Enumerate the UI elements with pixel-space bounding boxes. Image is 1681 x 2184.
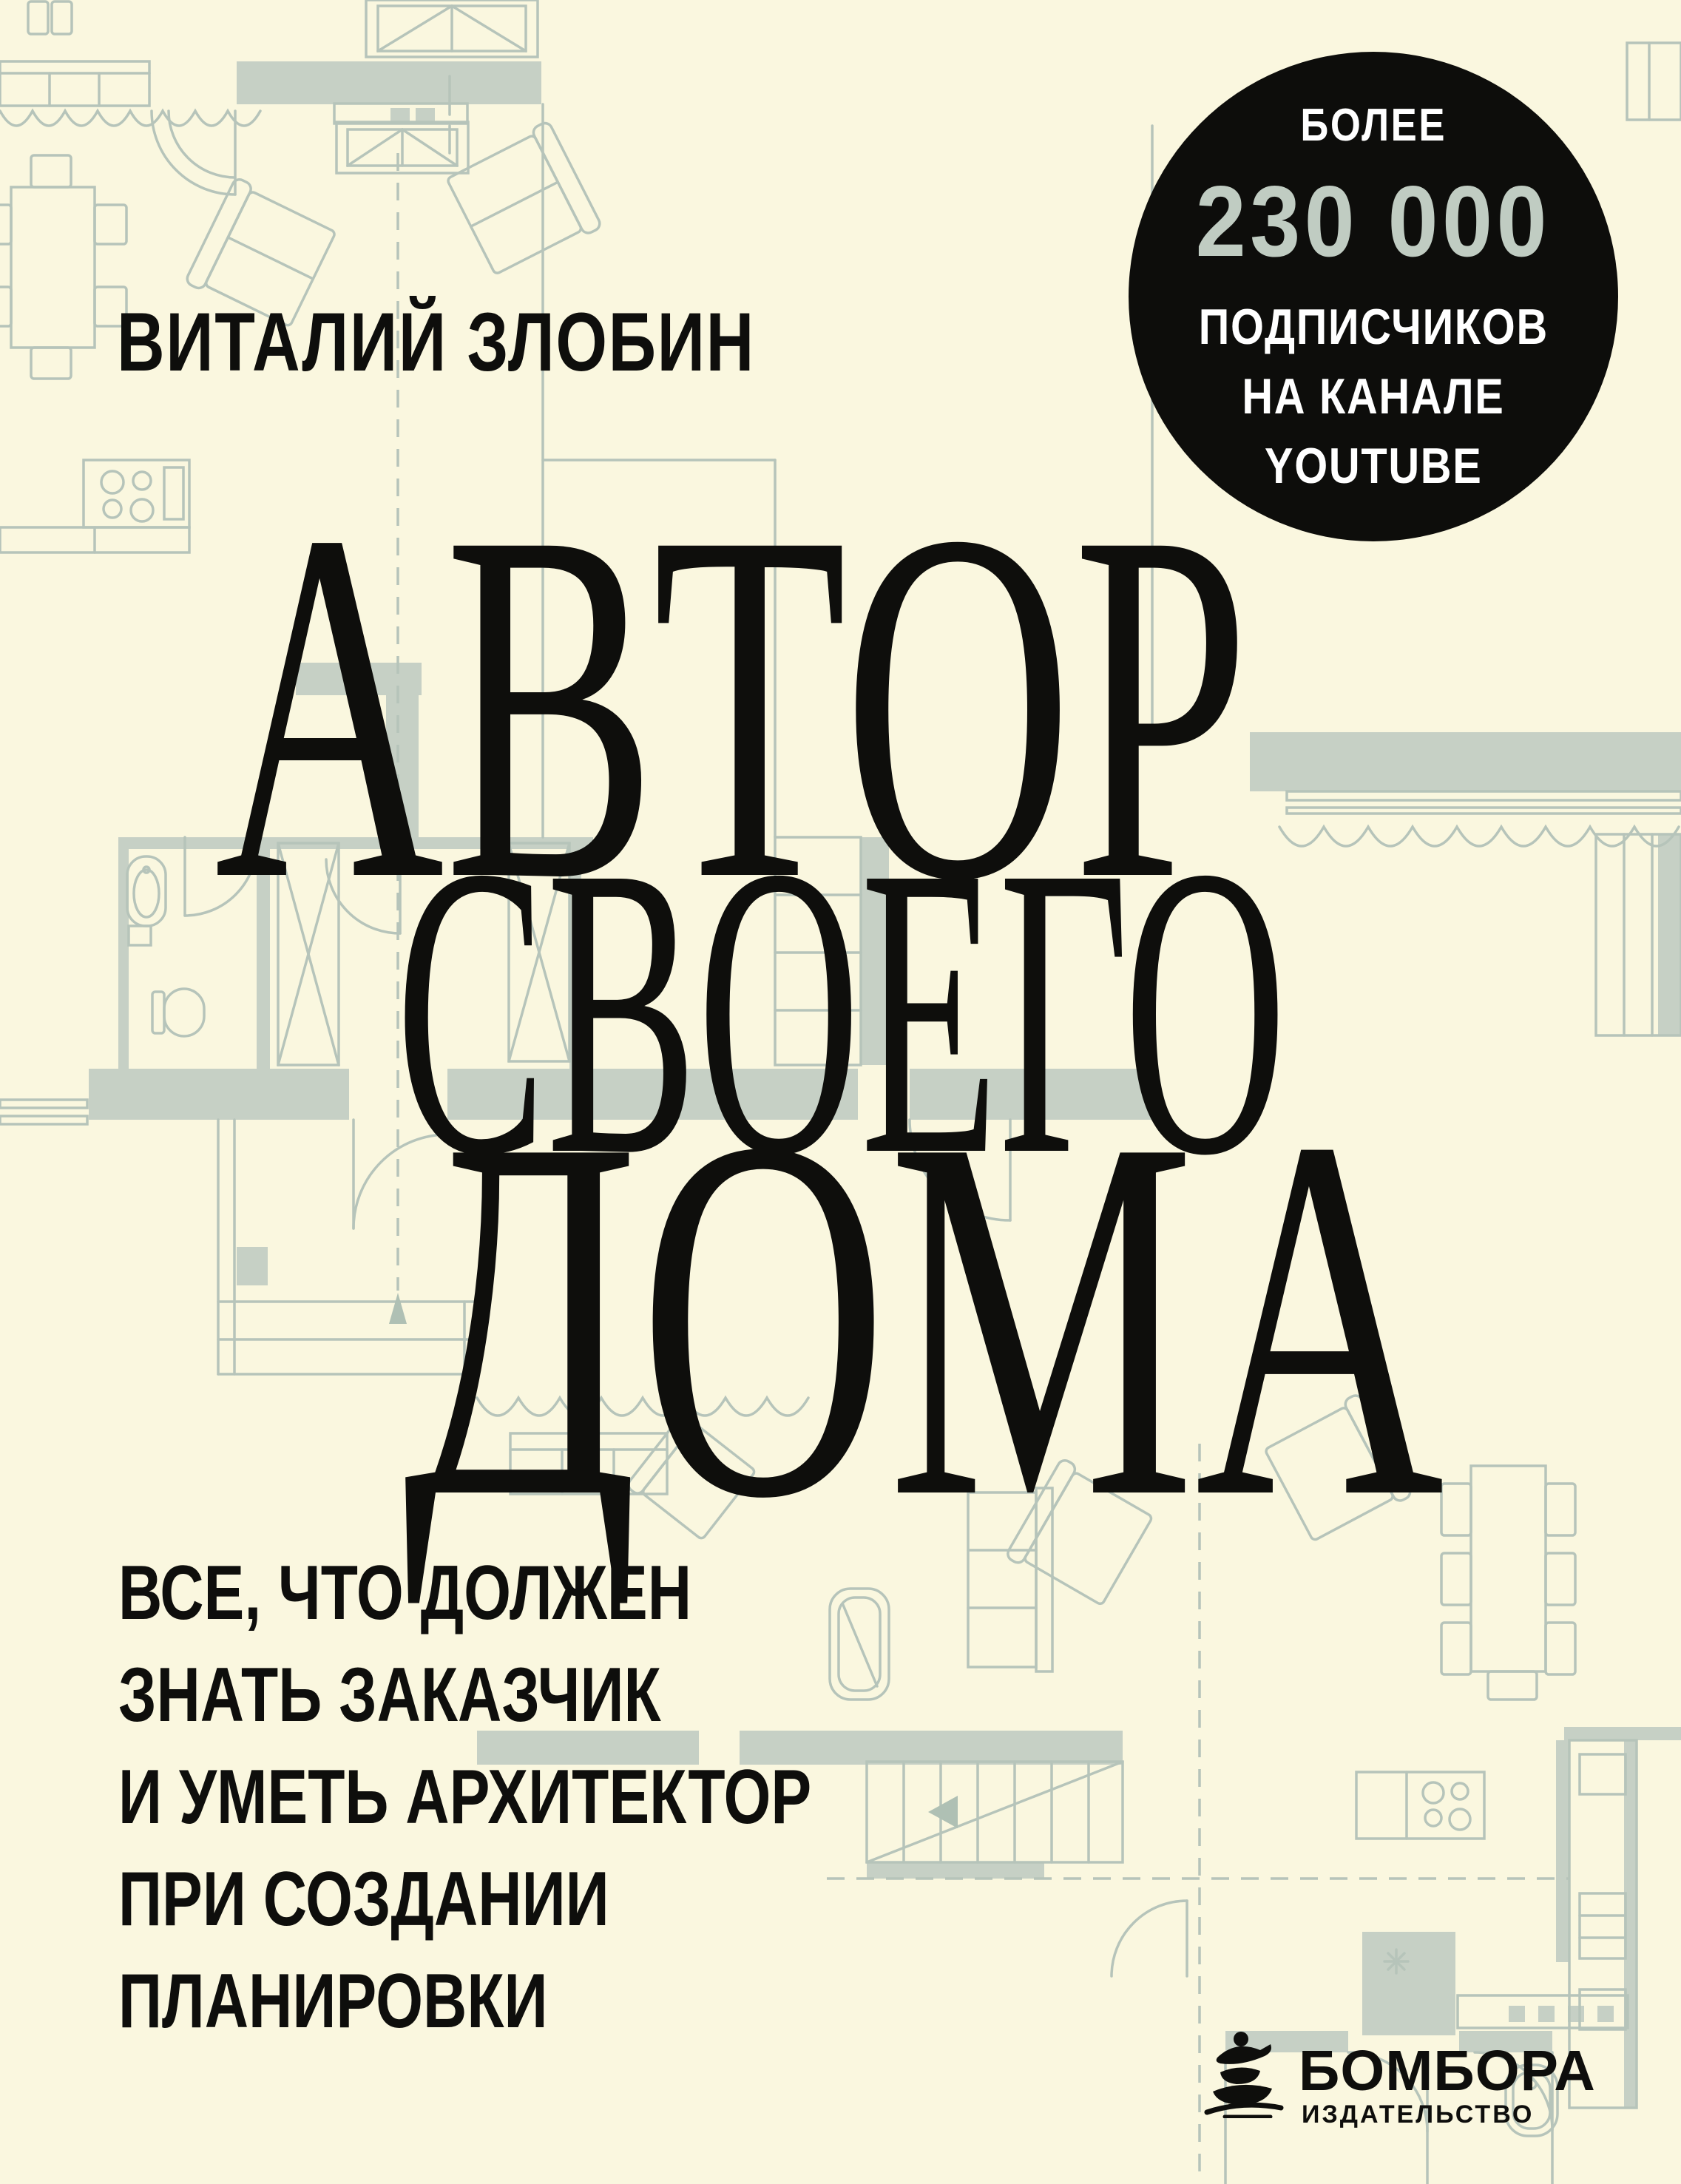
subtitle-block: ВСЕ, ЧТО ДОЛЖЕН ЗНАТЬ ЗАКАЗЧИК И УМЕТЬ А… xyxy=(118,1542,811,2052)
subtitle-line: ЗНАТЬ ЗАКАЗЧИК xyxy=(118,1644,811,1746)
subtitle-line: ПРИ СОЗДАНИИ xyxy=(118,1848,811,1950)
title-line-3: ДОМА xyxy=(403,1030,1444,1606)
book-cover: ВИТАЛИЙ ЗЛОБИН БОЛЕЕ 230 000 ПОДПИСЧИКОВ… xyxy=(0,0,1681,2184)
publisher-tagline: ИЗДАТЕЛЬСТВО xyxy=(1302,2100,1534,2129)
subtitle-line: ПЛАНИРОВКИ xyxy=(118,1950,811,2052)
subtitle-line: И УМЕТЬ АРХИТЕКТОР xyxy=(118,1746,811,1848)
subtitle-line: ВСЕ, ЧТО ДОЛЖЕН xyxy=(118,1542,811,1644)
bombora-logo-icon xyxy=(1203,2029,1285,2118)
publisher-name: БОМБОРА xyxy=(1299,2038,1596,2104)
